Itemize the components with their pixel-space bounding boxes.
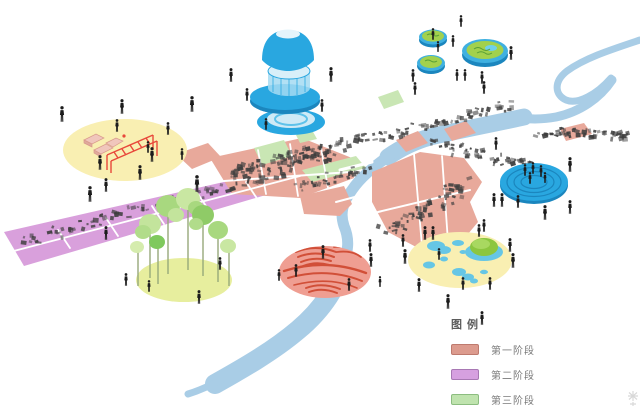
blue-stage-disc [500,163,568,204]
person-figure [368,239,371,252]
building-block [230,188,235,191]
dune-garden-feature [279,246,371,298]
building-block [448,183,454,187]
person-figure [417,278,421,292]
building-block [21,240,27,245]
building-block [500,153,502,157]
building-block [126,216,132,218]
building-block [395,221,401,224]
person-figure [197,290,201,304]
building-block [258,173,261,178]
building-block [504,110,506,113]
person-figure [379,276,382,287]
person-figure [568,157,572,172]
building-block [270,159,276,165]
person-figure [60,106,64,122]
person-figure [508,238,512,252]
building-block [592,134,597,140]
legend-item-phase2: 第二阶段 [451,367,535,382]
building-block [317,146,321,150]
phase2-color-swatch [451,369,479,380]
building-block [405,127,410,130]
person-figure [369,253,373,267]
building-block [362,166,366,170]
building-block [302,154,308,158]
person-figure [516,195,519,208]
person-figure [277,269,280,281]
building-block [456,115,462,120]
building-block [443,120,446,124]
person-figure [455,69,458,81]
building-block [441,204,444,208]
building-block [202,196,205,199]
building-block [445,192,451,196]
building-block [110,216,114,220]
building-block [576,133,581,137]
building-block [294,149,298,153]
building-block [258,180,264,184]
person-figure [459,15,462,27]
person-figure [446,294,450,309]
person-figure [401,234,404,247]
building-block [372,138,378,141]
building-block [346,143,352,148]
phase3-label: 第三阶段 [491,392,535,407]
building-block [593,130,597,133]
person-figure [104,178,108,192]
person-figure [124,273,127,286]
building-block [470,147,472,149]
person-figure [229,68,233,82]
building-block [507,108,511,111]
planter-disc-large [462,39,508,67]
person-figure [543,205,547,220]
phase3-color-swatch [451,394,479,405]
building-block [452,148,454,152]
building-block [416,206,422,211]
person-figure [451,35,454,47]
building-block [426,200,428,202]
building-block [474,148,478,153]
building-block [486,106,491,112]
building-block [450,120,453,124]
building-block [317,176,320,178]
phase1-label: 第一阶段 [491,342,535,357]
person-figure [488,277,491,290]
building-block [622,134,627,138]
building-block [364,133,367,135]
person-figure [463,69,466,81]
masterplan-illustration: 图例 第一阶段 第二阶段 第三阶段 [0,0,640,407]
building-block [500,163,504,166]
building-block [497,101,500,103]
building-block [421,123,427,128]
person-figure [511,253,515,268]
tower-pavilion [250,30,325,136]
water-play-feature [408,232,512,288]
building-block [401,224,405,228]
legend-title: 图例 [451,316,535,332]
green-mound [470,238,498,256]
person-figure [411,69,414,82]
building-block [294,156,298,161]
building-block [481,108,484,113]
building-block [459,195,464,200]
building-block [340,137,344,142]
building-block [439,145,443,148]
person-figure [413,82,416,95]
building-block [242,184,248,186]
building-block [443,188,445,190]
building-block [325,172,329,174]
building-block [451,144,455,146]
building-block [376,224,381,230]
person-figure [482,219,485,232]
person-figure [245,88,248,101]
building-block [550,132,553,135]
building-block [281,174,287,179]
person-figure [568,200,572,214]
building-block [428,212,433,217]
building-block [372,133,375,136]
building-block [300,183,303,188]
person-figure [492,193,496,207]
building-block [346,140,348,144]
building-block [464,118,468,122]
building-block [410,122,414,125]
building-block [257,165,259,167]
building-block [533,134,539,138]
watermark-fragment [628,391,638,406]
tower-dome-cap [262,30,314,72]
building-block [537,132,540,135]
person-figure [509,46,513,60]
building-block [465,155,470,158]
person-figure [320,99,323,112]
building-block [61,235,64,240]
scene-canvas [0,0,640,407]
building-block [472,110,478,115]
building-block [610,137,613,142]
person-figure [482,81,485,94]
person-figure [329,67,333,82]
planter-disc-small-2 [417,55,445,74]
person-figure [88,186,92,202]
building-block [354,134,360,140]
building-block [361,133,365,137]
building-block [430,143,433,146]
building-block [403,133,409,136]
building-block [256,159,260,163]
person-figure [437,41,440,52]
building-block [118,212,123,216]
building-block [475,107,480,110]
phase2-label: 第二阶段 [491,367,535,382]
building-block [460,189,464,193]
building-block [479,113,483,117]
building-block [389,227,391,229]
building-block [235,181,237,185]
building-block [363,170,367,175]
building-block [384,131,388,134]
building-block [343,148,348,153]
person-figure [120,99,124,114]
building-block [395,224,399,228]
person-figure [500,193,504,207]
person-figure [190,96,194,112]
building-block [407,220,409,223]
building-block [348,171,350,176]
building-block [295,154,297,156]
building-block [454,184,460,187]
building-block [445,188,448,190]
building-block [233,174,238,178]
legend-item-phase3: 第三阶段 [451,392,535,407]
building-block [400,217,402,220]
building-block [572,128,576,130]
phase1-color-swatch [451,344,479,355]
building-block [141,204,145,208]
building-block [288,156,293,160]
building-block [86,223,88,225]
building-block [329,145,332,147]
building-block [78,220,82,222]
building-block [462,186,465,189]
building-block [348,177,350,179]
building-block [514,159,516,161]
person-figure [403,249,407,264]
building-block [365,138,370,141]
building-block [323,182,328,184]
legend: 图例 第一阶段 第二阶段 第三阶段 [451,316,535,407]
building-block [596,130,600,134]
legend-item-phase1: 第一阶段 [451,342,535,357]
island-planter-discs [417,30,508,75]
building-block [280,161,283,165]
building-block [274,175,280,180]
building-block [333,181,336,184]
building-block [220,183,224,187]
building-block [509,100,515,103]
building-block [480,155,483,159]
phase3-patch-c [378,90,404,109]
person-figure [494,137,497,150]
building-block [356,171,360,174]
